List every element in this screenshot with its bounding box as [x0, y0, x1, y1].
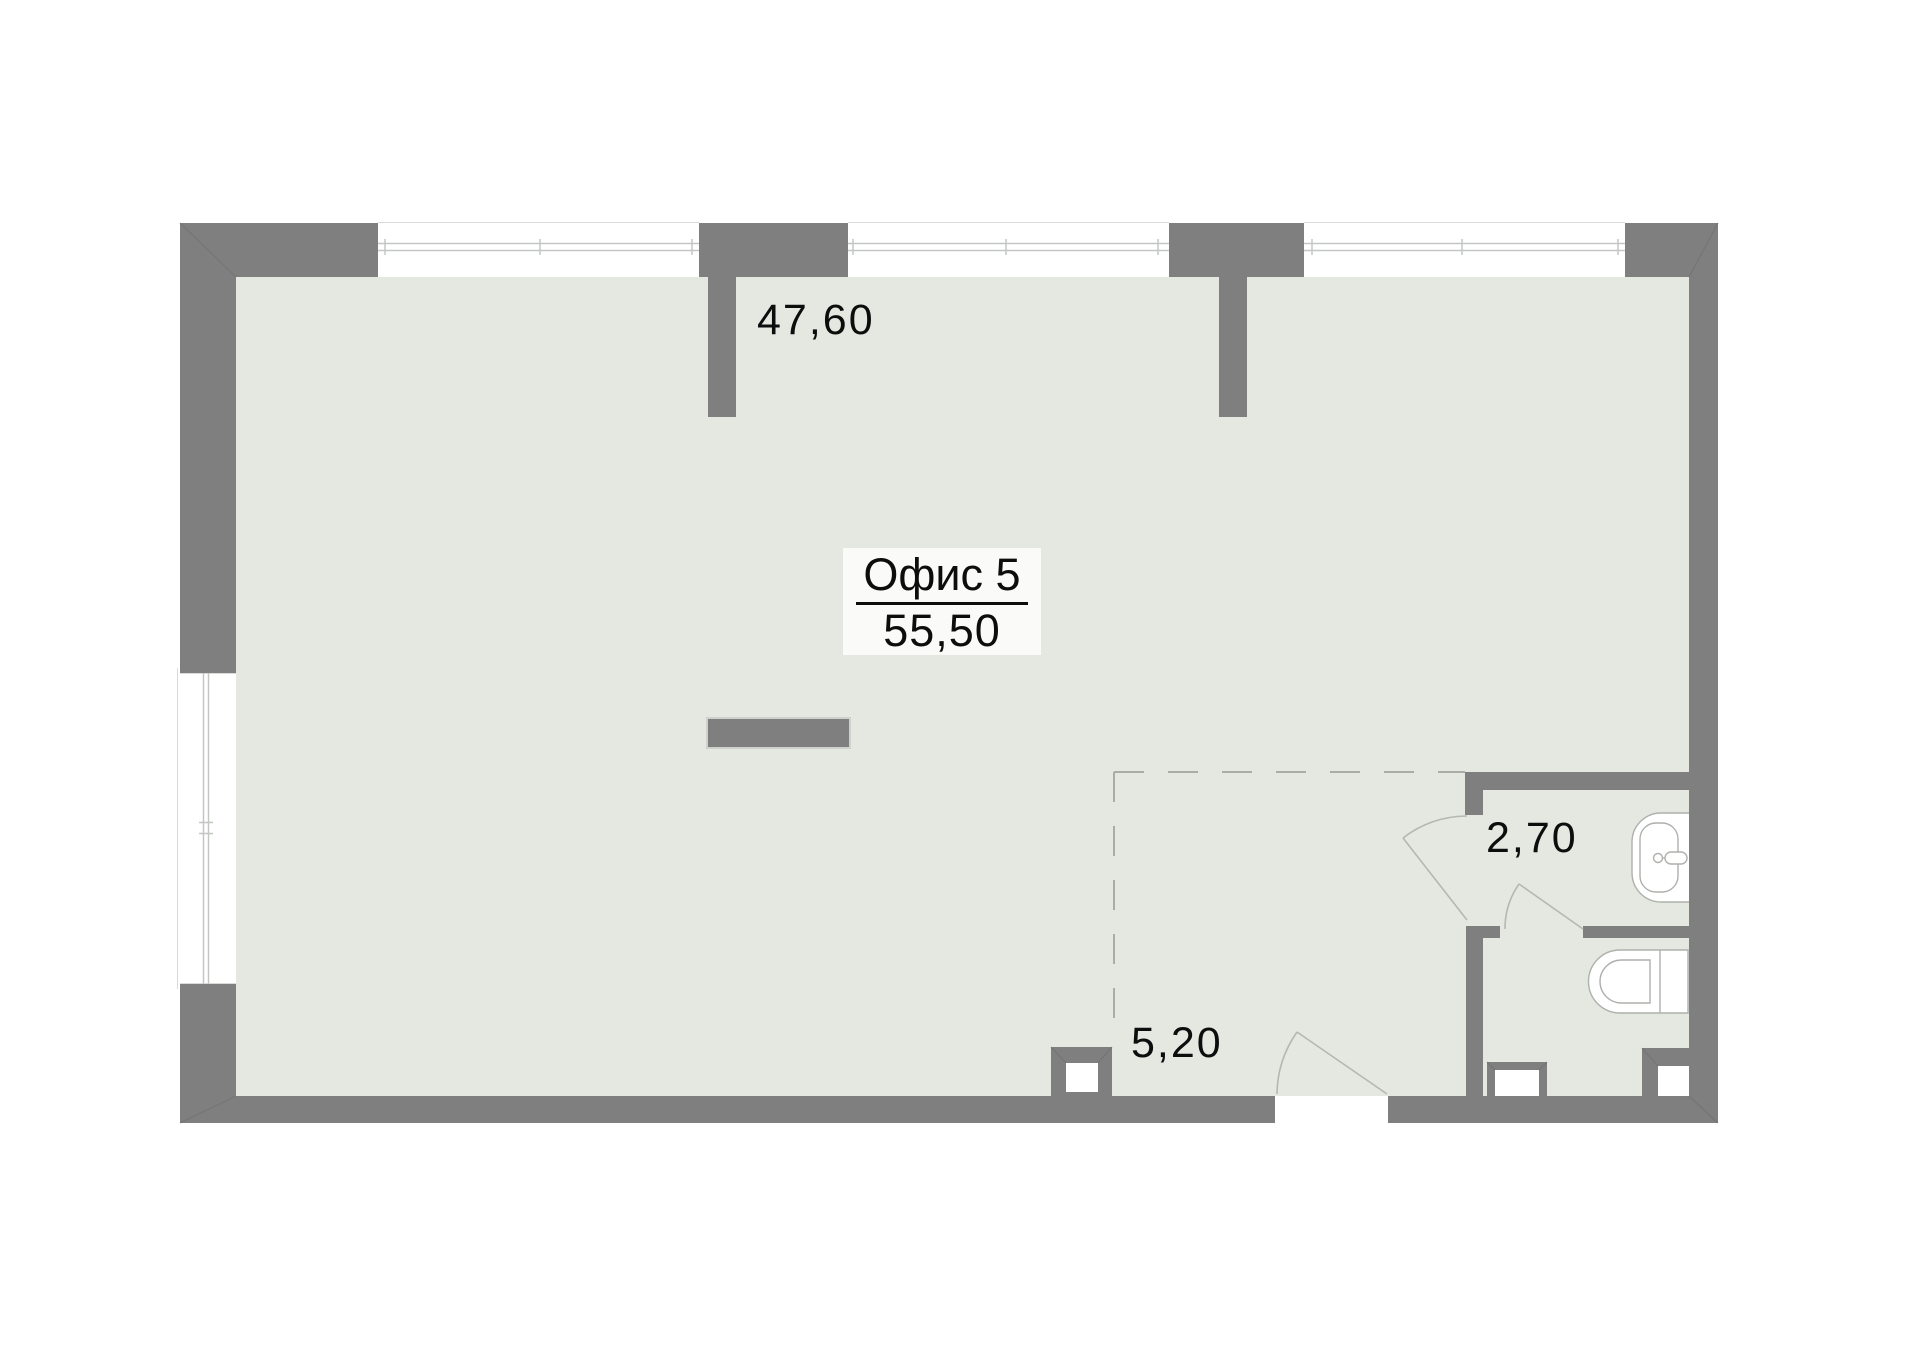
floor-plan: 47,60 5,20 2,70 Офис 5 55,50 — [0, 0, 1920, 1357]
shaft-opening — [1658, 1066, 1689, 1096]
wall-bathroom-top — [1465, 772, 1690, 790]
office-total-area-label: 55,50 — [883, 605, 1001, 657]
wall-bottom-right-of-door — [1388, 1096, 1718, 1123]
shaft-opening — [1495, 1070, 1539, 1096]
wall-bottom-left-of-door — [180, 1096, 1275, 1123]
wall-bathroom-mid — [1583, 926, 1690, 938]
toilet-icon — [1589, 950, 1689, 1013]
floor-plan-drawing — [0, 0, 1920, 1357]
sink-faucet-knob — [1654, 854, 1663, 863]
title-block: Офис 5 55,50 — [843, 548, 1041, 655]
wall-right — [1689, 223, 1718, 1123]
wall-pillar-stem-1 — [708, 277, 736, 417]
wall-bathroom-top-stub — [1465, 772, 1483, 815]
wall-top-pillar-2 — [1169, 223, 1304, 277]
wall-bathroom-vertical — [1466, 926, 1483, 1096]
main-room-area-label: 47,60 — [757, 299, 875, 342]
toilet-bowl — [1600, 960, 1650, 1003]
wall-pillar-stem-2 — [1219, 277, 1247, 417]
wall-interior-partition — [707, 718, 850, 748]
office-name-label: Офис 5 — [856, 551, 1027, 605]
wall-left-upper — [180, 223, 236, 673]
sink-faucet — [1665, 852, 1687, 864]
wall-top-pillar-1 — [699, 223, 848, 277]
sink-icon — [1632, 813, 1689, 902]
entry-area-label: 5,20 — [1131, 1022, 1223, 1065]
shaft-opening — [1066, 1063, 1098, 1092]
bathroom-area-label: 2,70 — [1486, 817, 1578, 860]
